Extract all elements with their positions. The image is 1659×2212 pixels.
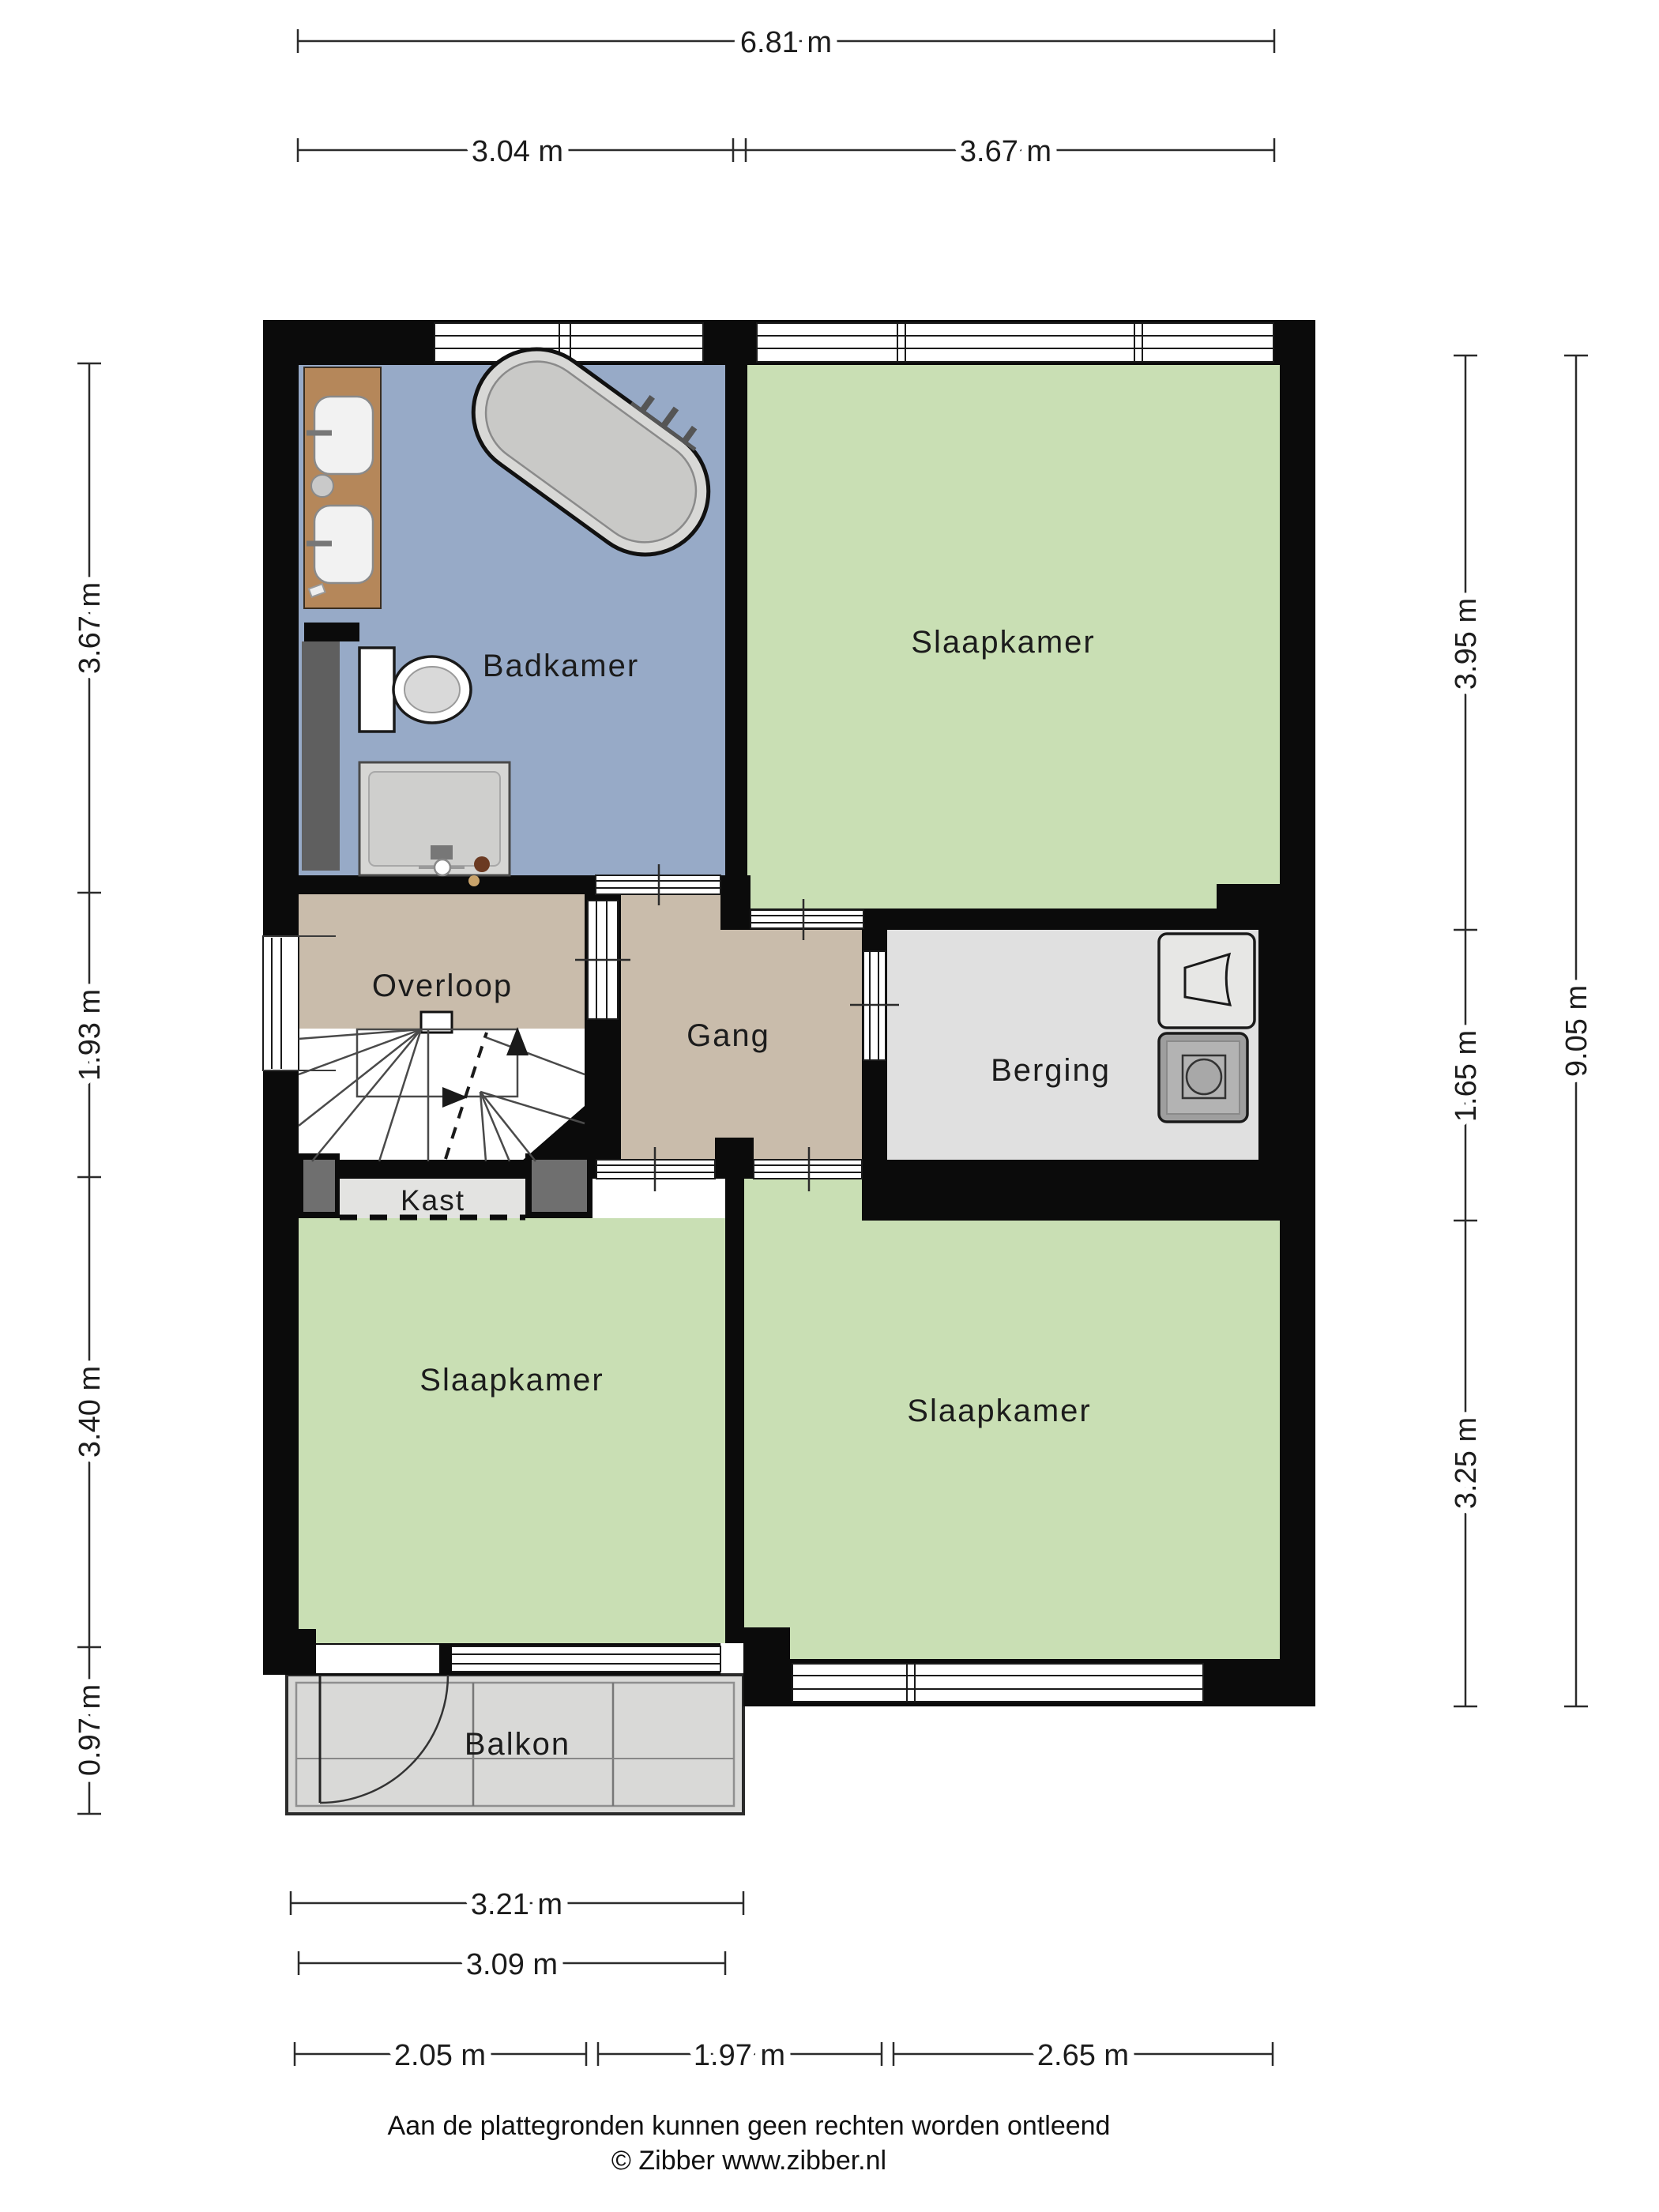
dim-label-left-1: 3.67 m xyxy=(73,582,107,674)
storage-fixtures xyxy=(1159,934,1255,1122)
window-bedroom-left-bottom xyxy=(439,1643,720,1673)
door-band xyxy=(750,910,863,928)
room-label-overloop: Overloop xyxy=(372,969,513,1003)
room-label-slaapkamer-top: Slaapkamer xyxy=(911,625,1095,660)
floor-plan-drawing: Badkamer Slaapkamer Overloop Gang Bergin… xyxy=(0,0,1659,2212)
dim-label-right-1: 3.95 m xyxy=(1450,598,1483,690)
window-bedroom-top xyxy=(757,323,1273,362)
dim-label-left-2: 1.93 m xyxy=(73,989,107,1081)
room-label-balkon: Balkon xyxy=(465,1727,570,1762)
dim-label-right-2: 1.65 m xyxy=(1450,1030,1483,1122)
footer: Aan de plattegronden kunnen geen rechten… xyxy=(388,2111,1111,2176)
floor-plan-page: Badkamer Slaapkamer Overloop Gang Bergin… xyxy=(0,0,1659,2212)
washing-machine-drum xyxy=(1187,1059,1221,1094)
door-band xyxy=(754,1160,862,1179)
laundry-sink-icon xyxy=(1159,934,1255,1028)
dim-label-left-3: 3.40 m xyxy=(73,1366,107,1458)
toilet-seat xyxy=(404,667,460,713)
landing-floor xyxy=(299,894,585,1029)
dim-label-bottom-2: 1.97 m xyxy=(694,2039,785,2072)
closet-pier-inset xyxy=(532,1160,587,1212)
shower-drain-icon xyxy=(434,860,450,875)
closet-pier-inset xyxy=(303,1160,335,1212)
vanity-accessory xyxy=(311,475,333,497)
duct-panel xyxy=(302,641,340,871)
wall-jamb xyxy=(715,1138,754,1179)
dim-label-bottom-3: 2.65 m xyxy=(1037,2039,1129,2072)
room-label-berging: Berging xyxy=(991,1053,1111,1088)
shower xyxy=(359,762,510,886)
bedroom-left-floor xyxy=(299,1218,725,1643)
wall-divider-top xyxy=(725,365,747,894)
toilet-cistern xyxy=(359,648,394,732)
room-label-kast: Kast xyxy=(401,1184,465,1217)
window-frame xyxy=(757,323,1273,362)
window-bedroom-right-bottom xyxy=(792,1664,1203,1702)
window-frame xyxy=(450,1646,720,1672)
room-label-badkamer: Badkamer xyxy=(483,649,639,683)
door-balcony-opening xyxy=(316,1645,439,1673)
wall-connector xyxy=(862,1160,887,1221)
wall-corner-block-right xyxy=(743,1627,790,1706)
stairwell-floor xyxy=(299,1029,585,1161)
wall-corner-block-left xyxy=(263,1629,316,1675)
window-frame xyxy=(792,1664,1203,1702)
footer-disclaimer: Aan de plattegronden kunnen geen rechten… xyxy=(388,2111,1111,2141)
wall-divider-bottom xyxy=(725,1179,744,1643)
wall-storage-bottom xyxy=(887,1160,1280,1221)
dim-label-left-4: 0.97 m xyxy=(73,1684,107,1776)
room-label-slaapkamer-right: Slaapkamer xyxy=(907,1394,1091,1428)
wall-toilet-stub xyxy=(304,623,359,641)
shower-accessory xyxy=(468,875,480,886)
footer-copyright: © Zibber www.zibber.nl xyxy=(611,2146,886,2176)
dim-label-right-total: 9.05 m xyxy=(1560,985,1593,1077)
dim-label-right-3: 3.25 m xyxy=(1450,1417,1483,1509)
dim-label-bottom-balkon: 3.21 m xyxy=(471,1888,562,1921)
window-jamb-block xyxy=(439,1643,452,1673)
room-label-slaapkamer-left: Slaapkamer xyxy=(419,1363,604,1398)
dim-label-top-total: 6.81 m xyxy=(740,26,832,59)
dim-label-bottom-room: 3.09 m xyxy=(466,1948,558,1981)
dim-label-top-left: 3.04 m xyxy=(472,135,563,168)
shower-valve-icon xyxy=(431,845,453,860)
shower-accessory xyxy=(474,856,490,872)
dim-label-bottom-1: 2.05 m xyxy=(394,2039,486,2072)
dim-label-top-right: 3.67 m xyxy=(960,135,1051,168)
room-label-gang: Gang xyxy=(687,1018,770,1053)
